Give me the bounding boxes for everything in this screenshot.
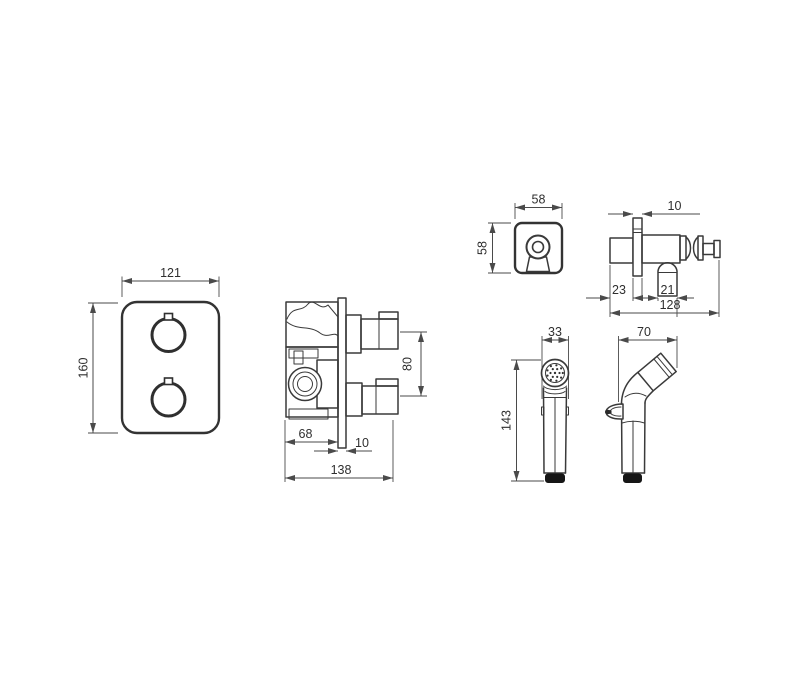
valve-upper-block	[286, 302, 338, 347]
dim-faceplate-height: 160	[77, 358, 91, 379]
dim-depth-to-plate: 68	[299, 427, 313, 441]
dim-faceplate-width: 121	[160, 266, 181, 280]
handle-left-edge	[544, 388, 545, 473]
spray-neck	[622, 372, 638, 403]
lower-port-flange	[346, 383, 362, 416]
lower-knob	[152, 383, 185, 416]
dim-outlet-plate-thickness: 10	[668, 199, 682, 213]
dim-outlet-plate-width: 58	[532, 193, 546, 207]
dim-plate-thickness: 10	[355, 436, 369, 450]
view-handspray-side: 70	[605, 325, 677, 483]
upper-port-flange	[346, 315, 361, 353]
outlet-rear-body	[610, 238, 633, 263]
dim-outlet-offset: 21	[661, 283, 675, 297]
view-valve-body-side: 80 68 10 138	[285, 298, 427, 482]
dim-port-spacing: 80	[401, 357, 415, 371]
dim-handspray-width: 33	[548, 325, 562, 339]
lower-knob-notch	[165, 378, 173, 385]
upper-knob	[152, 319, 185, 352]
view-outlet-plate-front: 58 58	[476, 193, 563, 274]
connector-stem	[703, 244, 714, 255]
outlet-front-body	[642, 235, 680, 263]
lower-port-cap	[376, 379, 398, 386]
dim-outlet-plate-height: 58	[476, 241, 490, 255]
view-faceplate-front: 121 160	[77, 266, 220, 433]
connector-flange	[714, 241, 720, 258]
dim-outlet-total-depth: 128	[660, 298, 681, 312]
technical-drawing: 121 160 80 68 10	[0, 0, 800, 680]
dim-handspray-height: 143	[500, 410, 514, 431]
technical-drawing-page: 121 160 80 68 10	[0, 0, 800, 680]
wall-plate-section	[338, 298, 346, 448]
lower-port-barrel	[362, 386, 398, 414]
outlet-ring	[527, 236, 550, 259]
upper-port-cap	[379, 312, 398, 319]
upper-knob-notch	[165, 314, 173, 321]
handle-end-cap	[546, 474, 565, 483]
view-outlet-side: 10 23 21 128	[586, 199, 720, 317]
dim-outlet-rear-depth: 23	[612, 283, 626, 297]
dim-total-depth: 138	[331, 463, 352, 477]
outlet-wall-plate	[633, 218, 642, 276]
dim-handspray-depth: 70	[637, 325, 651, 339]
handle-side-end-cap	[624, 474, 642, 483]
view-handspray-front: 33 143	[500, 325, 569, 483]
